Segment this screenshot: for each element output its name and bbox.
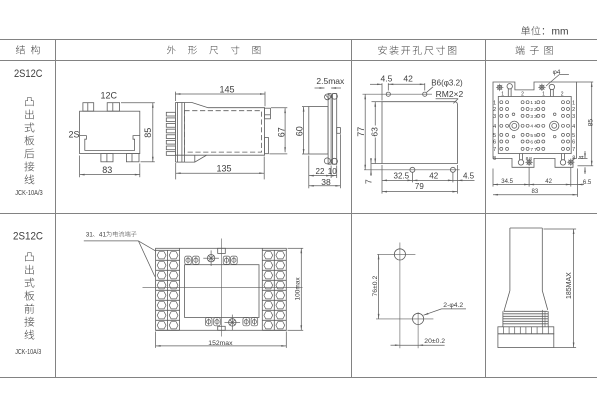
svg-text:32.5: 32.5	[394, 172, 410, 181]
svg-text:20±0.2: 20±0.2	[424, 338, 445, 345]
svg-text:10: 10	[328, 167, 337, 176]
svg-text:5: 5	[572, 133, 575, 139]
svg-text:185MAX: 185MAX	[566, 272, 573, 299]
svg-text:152max: 152max	[208, 340, 233, 347]
svg-text:JCK-10A/3: JCK-10A/3	[15, 190, 43, 197]
svg-text:83: 83	[532, 189, 539, 195]
svg-text:2S12C: 2S12C	[13, 230, 43, 242]
svg-text:1: 1	[530, 100, 533, 106]
svg-text:2: 2	[521, 92, 524, 98]
svg-text:2: 2	[493, 107, 496, 113]
svg-text:100max: 100max	[294, 277, 301, 301]
svg-text:2: 2	[561, 92, 564, 98]
svg-text:1: 1	[501, 92, 504, 98]
svg-text:85: 85	[588, 119, 595, 127]
svg-text:2: 2	[572, 107, 575, 113]
svg-text:34.5: 34.5	[501, 179, 513, 185]
svg-text:4: 4	[534, 124, 537, 130]
svg-text:60: 60	[294, 126, 304, 136]
svg-text:7: 7	[364, 179, 374, 184]
svg-text:2: 2	[530, 107, 533, 113]
svg-text:2S: 2S	[69, 130, 80, 140]
svg-text:7: 7	[534, 147, 537, 153]
svg-text:4: 4	[530, 124, 533, 130]
svg-text:6: 6	[493, 140, 496, 146]
svg-text:38: 38	[321, 177, 331, 187]
svg-text:RM2×2: RM2×2	[436, 89, 464, 99]
svg-text:4: 4	[572, 124, 575, 130]
svg-text:42: 42	[429, 172, 438, 181]
svg-text:6: 6	[534, 139, 537, 145]
svg-text:4.5: 4.5	[381, 73, 393, 83]
svg-text:8: 8	[526, 156, 529, 162]
svg-text:135: 135	[217, 164, 232, 174]
svg-text:3: 3	[493, 114, 496, 120]
svg-text:63: 63	[369, 127, 379, 137]
svg-text:42: 42	[545, 179, 552, 185]
svg-text:2.5max: 2.5max	[316, 76, 345, 86]
svg-text:77: 77	[356, 127, 366, 137]
svg-text:41: 41	[99, 231, 107, 238]
svg-text:83: 83	[102, 165, 112, 175]
svg-text:3: 3	[530, 114, 533, 120]
svg-text:145: 145	[220, 85, 235, 95]
svg-text:76±0.2: 76±0.2	[372, 276, 379, 297]
svg-text:1: 1	[534, 100, 537, 106]
svg-text:4: 4	[493, 124, 496, 130]
svg-text:8: 8	[493, 156, 496, 162]
svg-text:7: 7	[530, 147, 533, 153]
svg-text:5: 5	[534, 133, 537, 139]
svg-text:4.5: 4.5	[463, 172, 475, 181]
svg-text:79: 79	[415, 182, 424, 191]
svg-text:B6(φ3.2): B6(φ3.2)	[431, 79, 463, 88]
svg-text:85: 85	[143, 128, 153, 138]
svg-text:1: 1	[542, 92, 545, 98]
svg-text:6: 6	[572, 140, 575, 146]
svg-text:22: 22	[316, 167, 325, 176]
svg-text:42: 42	[403, 73, 413, 83]
svg-text:6: 6	[530, 139, 533, 145]
svg-text:JCK-10A/3: JCK-10A/3	[15, 349, 41, 356]
svg-text:67: 67	[277, 127, 287, 137]
svg-text:2-φ4.2: 2-φ4.2	[443, 302, 463, 309]
svg-text:1: 1	[572, 100, 575, 106]
svg-text:5: 5	[493, 133, 496, 139]
svg-text:7: 7	[572, 147, 575, 153]
svg-text:2S12C: 2S12C	[14, 68, 43, 80]
svg-text:5: 5	[530, 133, 533, 139]
svg-text:3: 3	[572, 114, 575, 120]
svg-text:2: 2	[534, 107, 537, 113]
svg-text:6.5: 6.5	[583, 180, 592, 186]
svg-text:12C: 12C	[101, 90, 118, 100]
svg-text:31: 31	[86, 231, 94, 238]
svg-text:1: 1	[493, 100, 496, 106]
svg-text:8: 8	[572, 156, 575, 162]
svg-text:7: 7	[493, 147, 496, 153]
svg-text:3: 3	[534, 114, 537, 120]
svg-text:8: 8	[529, 156, 532, 162]
svg-text:mm: mm	[552, 27, 569, 38]
